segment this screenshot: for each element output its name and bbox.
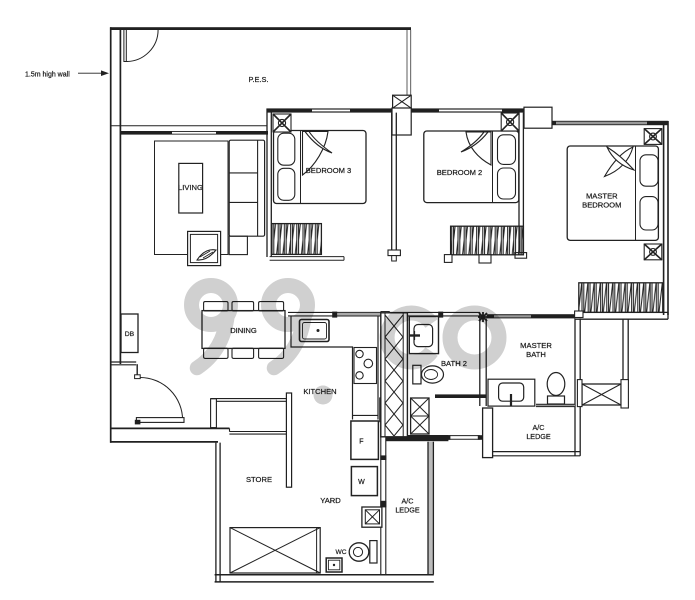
- svg-text:DINING: DINING: [230, 326, 257, 335]
- svg-text:BATH: BATH: [526, 350, 546, 359]
- svg-text:LEDGE: LEDGE: [526, 432, 551, 441]
- svg-text:MASTER: MASTER: [586, 191, 618, 200]
- svg-text:BEDROOM 3: BEDROOM 3: [306, 166, 352, 175]
- svg-text:MASTER: MASTER: [520, 341, 552, 350]
- svg-text:WC: WC: [336, 549, 347, 556]
- svg-text:LEDGE: LEDGE: [395, 506, 420, 515]
- svg-text:LIVING: LIVING: [178, 183, 203, 192]
- svg-text:A/C: A/C: [402, 497, 414, 506]
- svg-text:1.5m high wall: 1.5m high wall: [25, 72, 70, 79]
- svg-text:STORE: STORE: [246, 475, 272, 484]
- svg-text:BEDROOM: BEDROOM: [582, 201, 621, 210]
- svg-text:W: W: [358, 479, 365, 486]
- svg-text:P.E.S.: P.E.S.: [249, 75, 269, 84]
- svg-text:BEDROOM 2: BEDROOM 2: [437, 168, 483, 177]
- svg-text:F: F: [359, 438, 363, 445]
- svg-text:A/C: A/C: [533, 423, 545, 432]
- svg-text:DB: DB: [125, 331, 135, 338]
- svg-text:YARD: YARD: [320, 496, 341, 505]
